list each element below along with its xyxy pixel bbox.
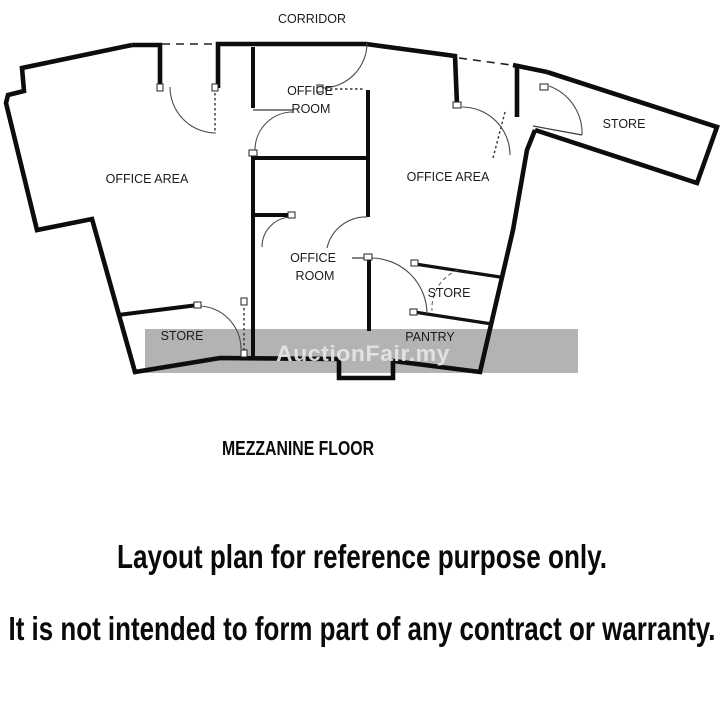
store-right-label: STORE: [428, 286, 471, 300]
corridor-label: CORRIDOR: [278, 12, 346, 26]
mezzanine-floor-plan: CORRIDOR OFFICE ROOM OFFICE AREA OFFICE …: [0, 0, 725, 703]
disclaimer-line1: Layout plan for reference purpose only.: [117, 538, 607, 575]
office-room-top-label-line2: ROOM: [292, 102, 331, 116]
store-top-right-label: STORE: [603, 117, 646, 131]
office-room-mid-label-line1: OFFICE: [290, 251, 336, 265]
watermark-text: AuctionFair.my: [276, 341, 450, 366]
store-left-label: STORE: [161, 329, 204, 343]
disclaimer-line2: It is not intended to form part of any c…: [9, 610, 716, 647]
office-area-right-label: OFFICE AREA: [407, 170, 490, 184]
office-room-top-label-line1: OFFICE: [287, 84, 333, 98]
office-area-left-label: OFFICE AREA: [106, 172, 189, 186]
office-room-mid-label-line2: ROOM: [296, 269, 335, 283]
floorplan-page: { "plan": { "corridor_label": "CORRIDOR"…: [0, 0, 725, 703]
floor-name-label: MEZZANINE FLOOR: [222, 438, 374, 460]
